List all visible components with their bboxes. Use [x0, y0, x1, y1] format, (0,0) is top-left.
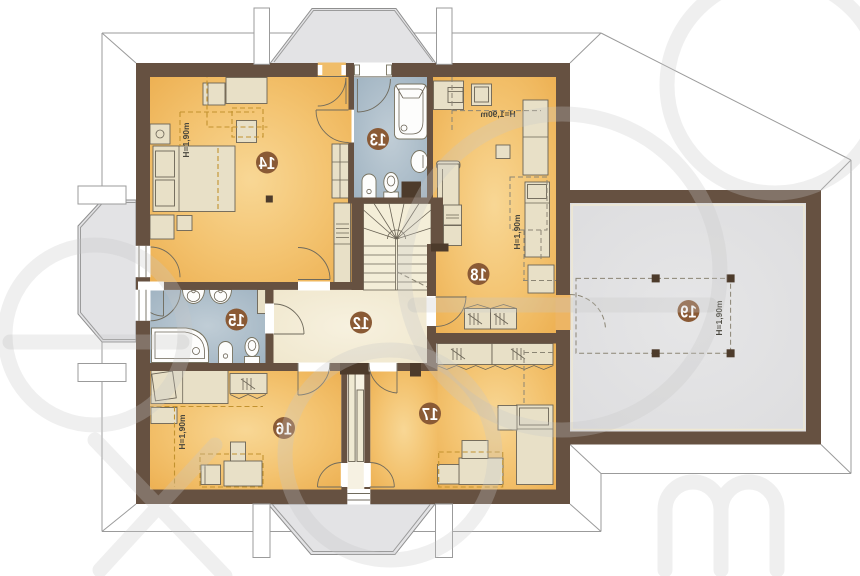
svg-text:12: 12	[353, 314, 369, 334]
svg-text:15: 15	[228, 311, 244, 331]
svg-text:H=1,90m: H=1,90m	[181, 122, 191, 158]
svg-text:17: 17	[422, 405, 438, 425]
svg-text:H=1,90m: H=1,90m	[512, 214, 522, 250]
svg-text:H=1,90m: H=1,90m	[177, 414, 187, 450]
svg-text:13: 13	[370, 130, 386, 150]
svg-text:18: 18	[470, 265, 486, 285]
svg-text:14: 14	[258, 154, 275, 174]
